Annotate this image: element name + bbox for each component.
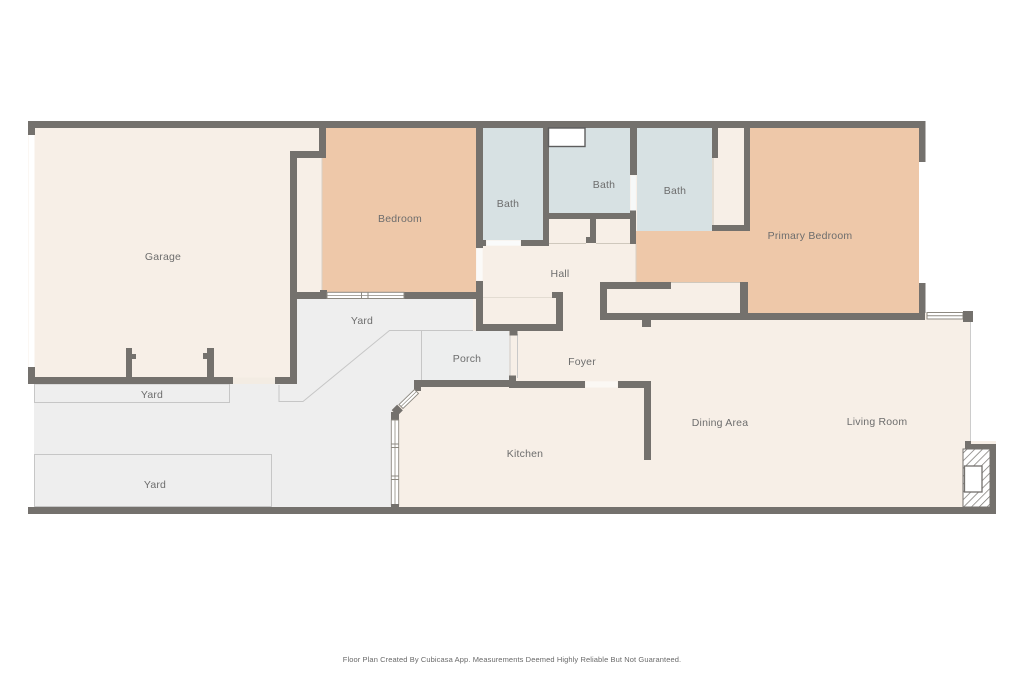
svg-text:Bath: Bath <box>497 198 519 210</box>
svg-text:Living Room: Living Room <box>847 416 908 428</box>
svg-text:Bath: Bath <box>593 179 615 191</box>
svg-text:Hall: Hall <box>551 268 570 280</box>
svg-text:Bath: Bath <box>664 185 686 197</box>
svg-text:Floor Plan Created By Cubicasa: Floor Plan Created By Cubicasa App. Meas… <box>343 655 681 664</box>
svg-text:Yard: Yard <box>141 389 163 401</box>
svg-text:Porch: Porch <box>453 353 481 365</box>
svg-text:Foyer: Foyer <box>568 356 596 368</box>
svg-text:Primary Bedroom: Primary Bedroom <box>768 230 853 242</box>
svg-text:Yard: Yard <box>351 315 373 327</box>
svg-text:Garage: Garage <box>145 251 181 263</box>
svg-text:Yard: Yard <box>144 479 166 491</box>
svg-text:Bedroom: Bedroom <box>378 213 422 225</box>
svg-text:Kitchen: Kitchen <box>507 448 543 460</box>
svg-text:Dining Area: Dining Area <box>692 417 748 429</box>
